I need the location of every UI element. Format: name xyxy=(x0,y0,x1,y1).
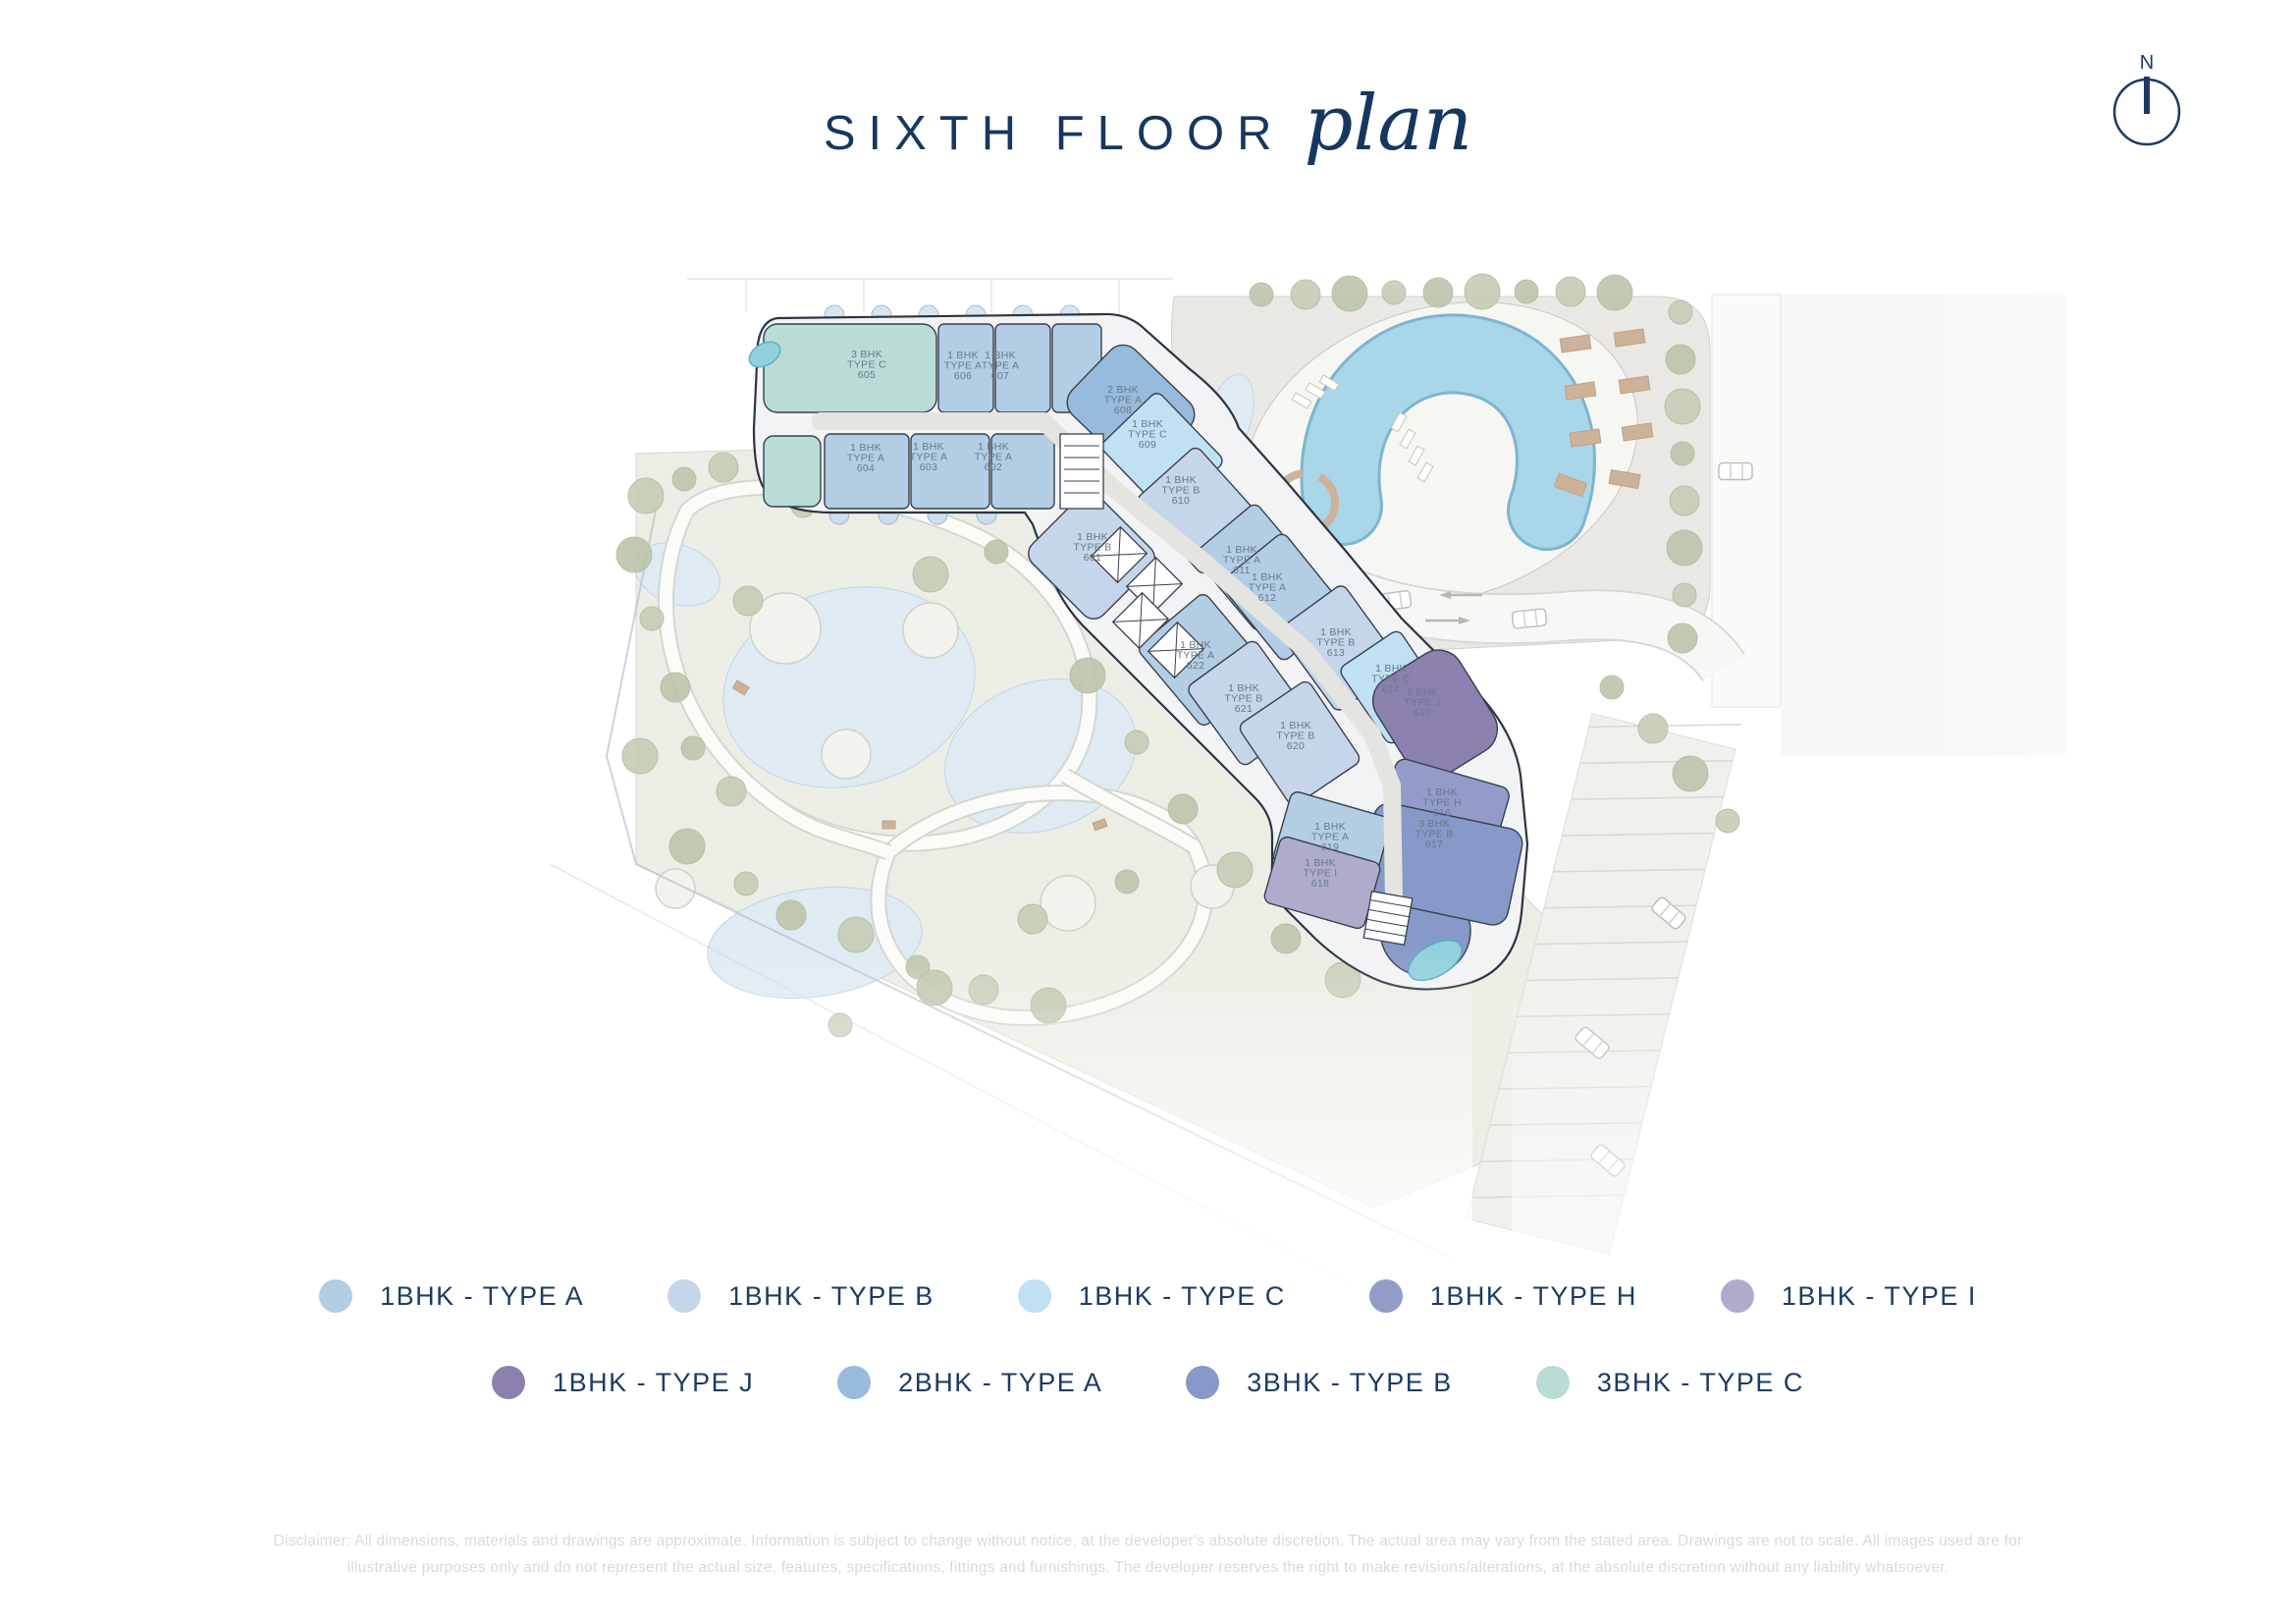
legend-label: 2BHK - TYPE A xyxy=(898,1368,1102,1398)
compass-needle xyxy=(2144,77,2150,114)
legend-label: 3BHK - TYPE C xyxy=(1597,1368,1804,1398)
legend-color-dot xyxy=(319,1279,352,1313)
tree-icon xyxy=(1668,623,1697,653)
legend-item: 3BHK - TYPE C xyxy=(1536,1366,1804,1399)
tree-icon xyxy=(1666,345,1695,374)
tree-icon xyxy=(1665,389,1700,424)
tree-icon xyxy=(1671,442,1694,465)
tree-icon xyxy=(669,829,705,864)
stair-core-wing xyxy=(1060,434,1103,509)
tree-icon xyxy=(1673,756,1708,791)
legend-label: 1BHK - TYPE I xyxy=(1782,1281,1977,1312)
legend-item: 1BHK - TYPE A xyxy=(319,1279,584,1313)
tree-icon xyxy=(1667,530,1702,566)
fade-right xyxy=(1924,275,2296,1257)
unit-shape-605b xyxy=(764,436,821,507)
tree-icon xyxy=(681,736,705,760)
legend-color-dot xyxy=(1018,1279,1051,1313)
tree-icon xyxy=(717,777,746,806)
tree-icon xyxy=(1600,676,1624,699)
disclaimer-line-2: illustrative purposes only and do not re… xyxy=(0,1554,2296,1581)
legend-label: 1BHK - TYPE C xyxy=(1079,1281,1286,1312)
tree-icon xyxy=(1669,300,1692,324)
tree-icon xyxy=(1716,809,1739,833)
tree-icon xyxy=(1515,280,1538,303)
legend-label: 1BHK - TYPE B xyxy=(728,1281,934,1312)
tree-icon xyxy=(1670,486,1699,515)
compass-label: N xyxy=(2140,52,2154,74)
tree-icon xyxy=(1332,276,1367,311)
legend-item: 1BHK - TYPE B xyxy=(667,1279,934,1313)
tree-icon xyxy=(1217,852,1253,888)
tree-icon xyxy=(616,537,652,572)
north-compass: N xyxy=(2114,52,2179,144)
tree-icon xyxy=(628,478,664,514)
legend-label: 1BHK - TYPE A xyxy=(380,1281,584,1312)
tree-icon xyxy=(985,540,1008,564)
tree-icon xyxy=(1465,274,1500,309)
tree-icon xyxy=(733,586,763,616)
tree-icon xyxy=(1382,281,1406,304)
tree-icon xyxy=(640,607,664,630)
tree-icon xyxy=(1556,277,1585,306)
tree-icon xyxy=(1638,714,1668,743)
tree-icon xyxy=(1673,583,1696,607)
legend-item: 2BHK - TYPE A xyxy=(837,1366,1102,1399)
legend-item: 1BHK - TYPE I xyxy=(1721,1279,1977,1313)
tree-icon xyxy=(1125,731,1148,754)
tree-icon xyxy=(672,467,696,491)
legend-row-2: 1BHK - TYPE J2BHK - TYPE A3BHK - TYPE B3… xyxy=(0,1366,2296,1399)
car-icon xyxy=(1719,463,1752,480)
legend-color-dot xyxy=(837,1366,871,1399)
car-icon xyxy=(1512,609,1547,628)
legend-color-dot xyxy=(492,1366,525,1399)
legend-color-dot xyxy=(1186,1366,1219,1399)
legend-color-dot xyxy=(1721,1279,1754,1313)
tree-icon xyxy=(913,557,948,592)
stair-core-south xyxy=(1363,892,1413,946)
tree-icon xyxy=(1423,278,1453,307)
disclaimer: Disclaimer: All dimensions, materials an… xyxy=(0,1528,2296,1581)
tree-icon xyxy=(1597,275,1632,310)
tree-icon xyxy=(1018,904,1047,934)
legend-item: 3BHK - TYPE B xyxy=(1186,1366,1453,1399)
tree-icon xyxy=(709,453,738,482)
legend-item: 1BHK - TYPE J xyxy=(492,1366,754,1399)
tree-icon xyxy=(661,673,690,702)
legend-item: 1BHK - TYPE C xyxy=(1018,1279,1286,1313)
tree-icon xyxy=(734,872,758,895)
tree-icon xyxy=(1168,794,1198,824)
legend-label: 3BHK - TYPE B xyxy=(1247,1368,1453,1398)
legend-row-1: 1BHK - TYPE A1BHK - TYPE B1BHK - TYPE C1… xyxy=(0,1279,2296,1313)
legend-color-dot xyxy=(1369,1279,1403,1313)
tree-icon xyxy=(1291,280,1320,309)
legend-color-dot xyxy=(667,1279,701,1313)
legend-label: 1BHK - TYPE H xyxy=(1430,1281,1637,1312)
tree-icon xyxy=(776,900,806,930)
tree-icon xyxy=(1070,658,1105,693)
legend-color-dot xyxy=(1536,1366,1570,1399)
legend-label: 1BHK - TYPE J xyxy=(553,1368,754,1398)
tree-icon xyxy=(622,738,658,774)
tree-icon xyxy=(1250,283,1273,306)
disclaimer-line-1: Disclaimer: All dimensions, materials an… xyxy=(0,1528,2296,1554)
legend-item: 1BHK - TYPE H xyxy=(1369,1279,1637,1313)
tree-icon xyxy=(1115,870,1139,893)
